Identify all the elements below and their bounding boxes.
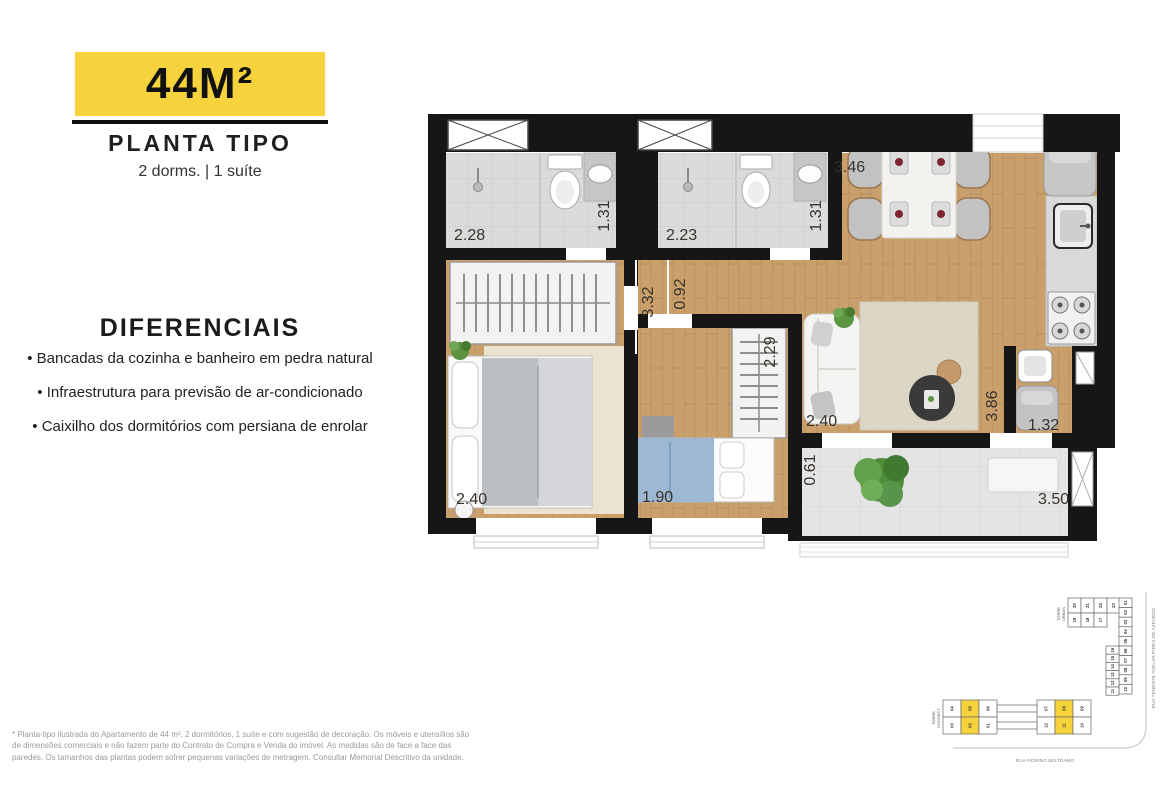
floor-plan: 2.28 1.31 2.23 1.31 3.46 3.32 0.92 2.40 …	[420, 106, 1145, 561]
dim-dining-width: 3.46	[834, 159, 865, 176]
unit-number: 02	[968, 723, 973, 728]
unit-number: 07	[1044, 706, 1049, 711]
sofa	[804, 314, 860, 424]
unit-number: 17	[1098, 617, 1103, 622]
stove-icon	[1048, 292, 1095, 344]
unit-number: 11	[1110, 688, 1115, 693]
unit-number: 10	[1080, 723, 1085, 728]
unit-number: 12	[1044, 723, 1049, 728]
unit-number: 01	[986, 723, 991, 728]
badge-underline	[72, 120, 328, 124]
street-name-bottom: RUA FIORINO BELTRAMO	[1016, 758, 1075, 764]
dim-living-width: 2.40	[806, 413, 837, 430]
connector-corridor	[997, 705, 1037, 729]
dim-bedroom2-closet: 2.29	[762, 336, 779, 367]
unit-number: 05	[968, 706, 973, 711]
bath2-door	[770, 248, 810, 260]
dim-bedroom2-width: 1.90	[642, 489, 673, 506]
unit-number: 03	[1123, 619, 1128, 624]
svg-text:URBAN: URBAN	[1061, 607, 1066, 621]
unit-number: 10	[1123, 686, 1128, 691]
features-title: DIFERENCIAIS	[0, 314, 400, 343]
toilet-icon	[548, 155, 582, 209]
floor-plan-svg: 2.28 1.31 2.23 1.31 3.46 3.32 0.92 2.40 …	[420, 106, 1145, 561]
unit-number: 13	[1110, 672, 1115, 677]
site-key-plan: 2021222319181701020304050607080910161514…	[925, 588, 1163, 783]
dim-hall-width: 0.92	[672, 278, 689, 309]
unit-cells: 2021222319181701020304050607080910161514…	[943, 598, 1132, 734]
page-subtitle: 2 dorms. | 1 suíte	[0, 163, 400, 181]
svg-text:CONNECT: CONNECT	[936, 708, 941, 728]
balcony-bench	[988, 458, 1058, 492]
unit-number: 02	[1123, 609, 1128, 614]
disclaimer-text: * Planta-tipo ilustrada do Apartamento d…	[12, 729, 474, 763]
features-list: Bancadas da cozinha e banheiro em pedra …	[0, 350, 400, 435]
shaft-box	[448, 120, 528, 150]
balcony-sliding-door	[822, 433, 892, 448]
unit-number: 11	[1062, 723, 1067, 728]
feature-item: Caixilho dos dormitórios com persiana de…	[0, 418, 400, 435]
page-title: PLANTA TIPO	[0, 130, 400, 157]
unit-number: 09	[1080, 706, 1085, 711]
suite-wardrobe	[450, 262, 616, 344]
dim-bath2-depth: 1.31	[808, 200, 825, 231]
unit-number: 23	[1111, 603, 1116, 608]
unit-number: 21	[1085, 603, 1090, 608]
dim-hall-length: 3.32	[640, 286, 657, 317]
dim-laundry-width: 1.32	[1028, 417, 1059, 434]
unit-number: 01	[1123, 600, 1128, 605]
balcony-service-door	[990, 433, 1052, 448]
dim-suite-bath-width: 2.28	[454, 227, 485, 244]
dim-balcony-depth: 0.61	[802, 454, 819, 485]
unit-number: 20	[1072, 603, 1077, 608]
toilet-icon	[740, 155, 772, 208]
feature-item: Infraestrutura para previsão de ar-condi…	[0, 384, 400, 401]
dining-window	[973, 114, 1043, 152]
unit-number: 14	[1110, 664, 1115, 669]
balcony-railing	[800, 543, 1068, 557]
dim-suite-width: 2.40	[456, 491, 487, 508]
unit-number: 08	[1123, 667, 1128, 672]
dim-balcony-width: 3.50	[1038, 491, 1069, 508]
tower-urban-label: TORRE URBAN	[1056, 607, 1066, 621]
area-badge-label: 44M²	[146, 59, 254, 109]
unit-number: 22	[1098, 603, 1103, 608]
site-plan-svg: 2021222319181701020304050607080910161514…	[925, 588, 1163, 783]
dim-suite-bath-depth: 1.31	[596, 200, 613, 231]
bedroom2-window	[650, 518, 764, 548]
unit-number: 18	[1085, 617, 1090, 622]
unit-number: 12	[1110, 680, 1115, 685]
dim-bath2-width: 2.23	[666, 227, 697, 244]
kitchen-sink-icon	[1054, 204, 1092, 248]
service-panel	[1076, 352, 1094, 384]
shaft-box	[638, 120, 712, 150]
suite-bath-door	[566, 248, 606, 260]
unit-number: 04	[950, 706, 955, 711]
unit-number: 07	[1123, 657, 1128, 662]
suite-window	[474, 518, 598, 548]
unit-number: 06	[1123, 648, 1128, 653]
dining-chair	[848, 198, 884, 240]
unit-number: 09	[1123, 677, 1128, 682]
dining-chair	[954, 198, 990, 240]
entry-panel	[1072, 452, 1093, 506]
bath-sink-icon	[584, 153, 616, 201]
unit-number: 08	[1062, 706, 1067, 711]
coffee-table	[909, 375, 955, 421]
page: 44M² PLANTA TIPO 2 dorms. | 1 suíte DIFE…	[0, 0, 1170, 785]
unit-number: 16	[1110, 647, 1115, 652]
area-badge: 44M²	[75, 52, 325, 116]
dim-kitchen-length: 3.86	[984, 390, 1001, 421]
feature-item: Bancadas da cozinha e banheiro em pedra …	[0, 350, 400, 367]
street-name-right: RUA TENENTE AVELAR PIRES DE AZEVEDO	[1151, 607, 1157, 708]
suite-bed	[448, 356, 592, 508]
unit-number: 05	[1123, 638, 1128, 643]
kitchen	[1044, 138, 1097, 346]
unit-number: 15	[1110, 655, 1115, 660]
unit-number: 04	[1123, 629, 1128, 634]
unit-number: 03	[950, 723, 955, 728]
bath-sink-icon	[794, 153, 826, 201]
unit-number: 06	[986, 706, 991, 711]
unit-number: 19	[1072, 617, 1077, 622]
tower-connect-label: TORRE CONNECT	[931, 708, 941, 728]
